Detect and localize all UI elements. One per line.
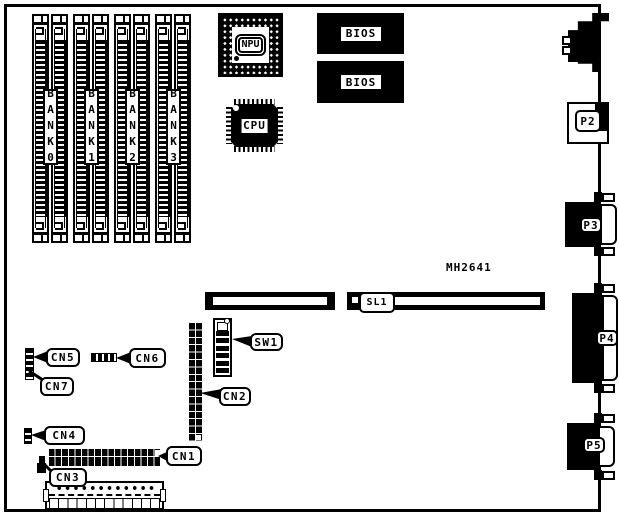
p4-mount-tab xyxy=(594,383,602,393)
cn5-callout: CN5 xyxy=(46,348,80,367)
sw1-dip-switch xyxy=(213,318,232,377)
cn3-component xyxy=(39,456,45,463)
sw1-dot-icon xyxy=(224,318,230,324)
simm-latch-icon xyxy=(178,27,186,35)
bios-top-label: BIOS xyxy=(341,27,381,41)
npu-core: NPU xyxy=(232,27,269,63)
cn7-callout: CN7 xyxy=(40,377,74,396)
cpu-label: CPU xyxy=(241,119,268,133)
simm-latch-icon xyxy=(77,222,85,230)
cn1-callout: CN1 xyxy=(166,446,202,466)
simm-latch-icon xyxy=(36,222,44,230)
p3-dsub-shell xyxy=(600,204,617,245)
p3-mount-tab xyxy=(594,247,602,256)
isa-slot-window xyxy=(392,297,540,305)
isa-slot-segment-a xyxy=(205,292,335,310)
simm-bottom-tab xyxy=(51,233,68,243)
din-tab xyxy=(562,46,572,55)
simm-latch-icon xyxy=(137,27,145,35)
sw1-switch-bars xyxy=(216,331,229,373)
simm-bottom-tab xyxy=(32,233,49,243)
p4-mount-tab xyxy=(602,284,615,293)
sl1-label: SL1 xyxy=(359,292,395,313)
p4-mount-tab xyxy=(602,384,615,393)
simm-bottom-tab xyxy=(114,233,131,243)
isa-slot-segment-b: SL1 xyxy=(347,292,545,310)
p5-label: P5 xyxy=(583,437,605,453)
simm-latch-icon xyxy=(159,222,167,230)
simm-latch-icon xyxy=(137,222,145,230)
simm-bottom-tab xyxy=(92,233,109,243)
npu-chip: NPU xyxy=(218,13,283,77)
bank0-label: BANK0 xyxy=(43,89,58,165)
p2-label: P2 xyxy=(575,110,601,132)
p4-label: P4 xyxy=(596,330,618,346)
simm-latch-icon xyxy=(178,222,186,230)
cpu-chip: CPU xyxy=(226,99,283,152)
isa-key-notch xyxy=(352,297,358,303)
cn5-header xyxy=(25,348,34,380)
simm-bottom-tab xyxy=(174,233,191,243)
motherboard-diagram: BANK0 BANK1 BANK2 BANK3 NPU CPU BIOS BIO… xyxy=(0,0,619,520)
simm-bottom-tab xyxy=(155,233,172,243)
cn6-callout: CN6 xyxy=(129,348,166,368)
cpu-pin1-dot-icon xyxy=(233,105,239,111)
simm-latch-icon xyxy=(118,222,126,230)
simm-latch-icon xyxy=(36,27,44,35)
bios-chip-top: BIOS xyxy=(317,13,404,54)
cn3-callout: CN3 xyxy=(49,468,87,487)
isa-slot-window xyxy=(213,297,327,305)
p3-mount-tab xyxy=(594,192,602,202)
cn2-callout: CN2 xyxy=(219,387,251,406)
p4-mount-tab xyxy=(594,283,602,293)
cn1-header xyxy=(48,449,161,466)
npu-pin1-dot-icon xyxy=(234,56,239,61)
p5-mount-tab xyxy=(602,471,615,480)
cn2-header xyxy=(189,322,202,441)
bank3-label: BANK3 xyxy=(166,89,181,165)
p3-label: P3 xyxy=(580,217,602,233)
bank1-label: BANK1 xyxy=(84,89,99,165)
simm-bottom-tab xyxy=(73,233,90,243)
power-divider xyxy=(49,494,160,496)
cn4-callout: CN4 xyxy=(44,426,85,445)
cn3-component xyxy=(37,463,46,473)
din-tab xyxy=(562,36,572,45)
board-model-text: MH2641 xyxy=(446,261,492,274)
sw1-callout: SW1 xyxy=(250,333,283,351)
simm-latch-icon xyxy=(96,222,104,230)
simm-latch-icon xyxy=(96,27,104,35)
simm-latch-icon xyxy=(159,27,167,35)
simm-bottom-tab xyxy=(133,233,150,243)
bios-bottom-label: BIOS xyxy=(341,75,381,89)
bank2-label: BANK2 xyxy=(125,89,140,165)
power-cells-row xyxy=(49,498,160,509)
npu-label: NPU xyxy=(238,37,262,53)
bios-chip-bottom: BIOS xyxy=(317,61,404,103)
p5-mount-tab xyxy=(594,413,602,423)
p5-mount-tab xyxy=(602,414,615,423)
p3-mount-tab xyxy=(602,193,615,202)
cn6-header xyxy=(91,353,117,362)
simm-latch-icon xyxy=(55,27,63,35)
simm-latch-icon xyxy=(77,27,85,35)
npu-label-frame: NPU xyxy=(235,34,265,56)
simm-latch-icon xyxy=(55,222,63,230)
p3-mount-tab xyxy=(602,247,615,256)
p5-mount-tab xyxy=(594,470,602,480)
cn4-header xyxy=(24,428,32,444)
simm-latch-icon xyxy=(118,27,126,35)
